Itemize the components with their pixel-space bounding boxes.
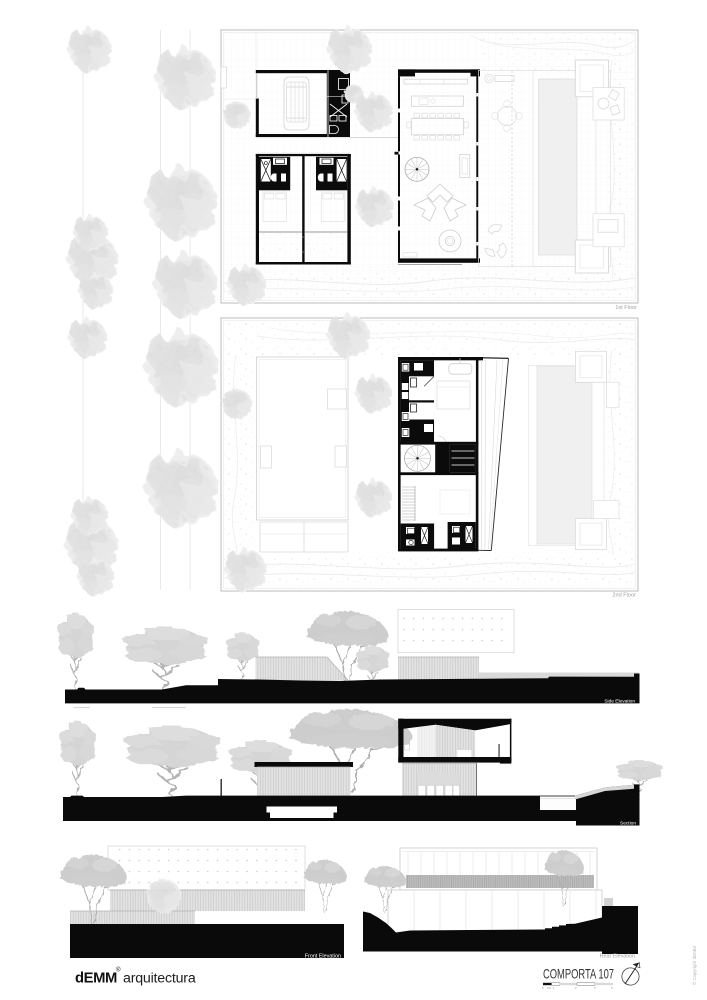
svg-text:Rear Elevation: Rear Elevation: [600, 954, 635, 960]
svg-text:dEMM: dEMM: [75, 971, 117, 987]
svg-text:arquitectura: arquitectura: [123, 971, 196, 987]
svg-text:© Copyright dEMM: © Copyright dEMM: [691, 946, 697, 985]
svg-text:0.5: 0.5: [547, 986, 551, 990]
svg-text:Section: Section: [620, 820, 636, 826]
svg-text:Front Elevation: Front Elevation: [305, 954, 341, 960]
svg-text:2nd Floor: 2nd Floor: [612, 593, 636, 599]
svg-text:COMPORTA 107: COMPORTA 107: [543, 966, 614, 982]
svg-text:Side Elevation: Side Elevation: [604, 699, 635, 705]
svg-text:®: ®: [116, 967, 121, 974]
svg-text:1st Floor: 1st Floor: [615, 305, 637, 311]
